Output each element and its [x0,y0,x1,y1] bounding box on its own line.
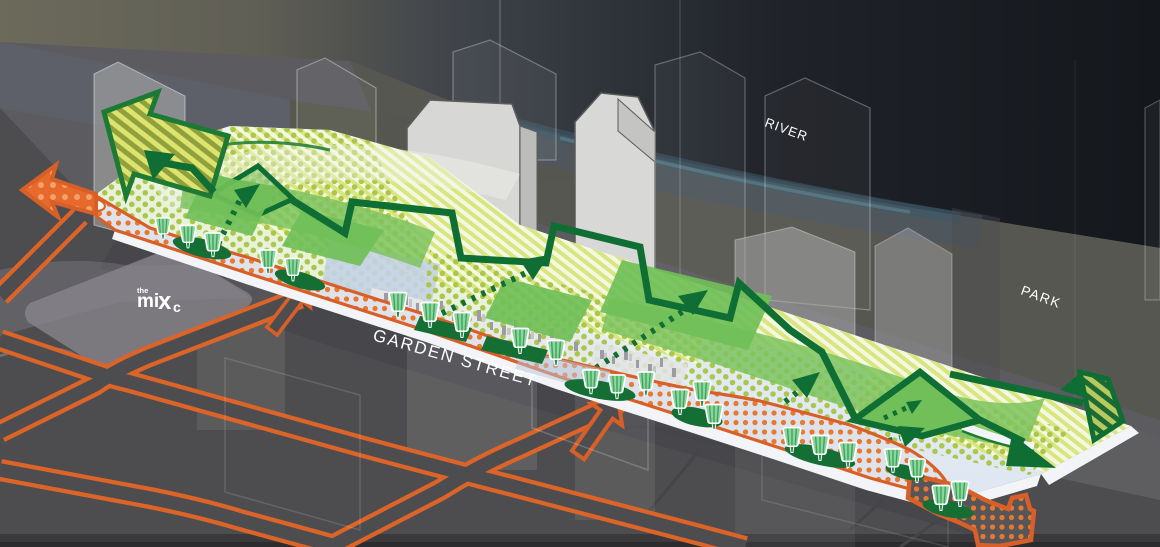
svg-text:x: x [158,288,172,315]
svg-text:mi: mi [137,291,159,312]
svg-text:c: c [173,299,181,315]
